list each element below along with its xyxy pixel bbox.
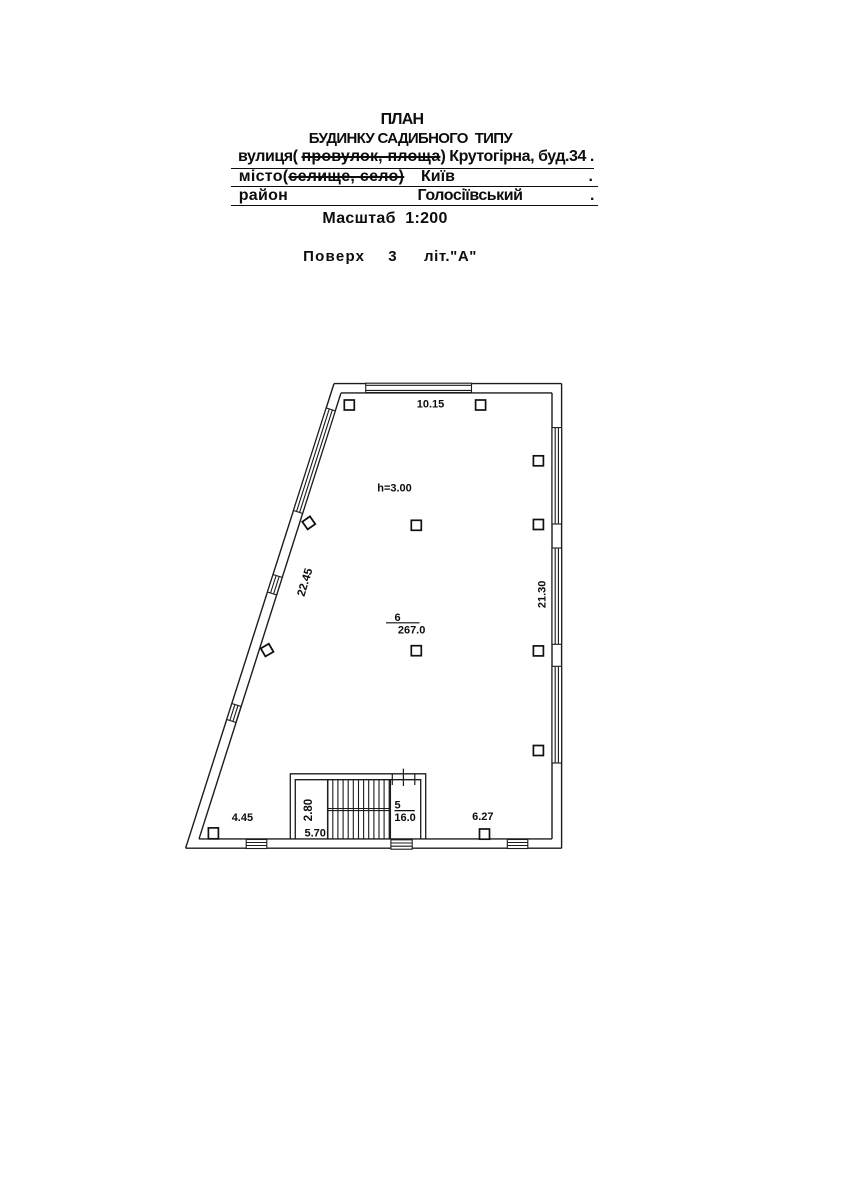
svg-text:16.0: 16.0: [394, 812, 415, 824]
svg-text:4.45: 4.45: [232, 812, 253, 824]
svg-text:267.0: 267.0: [398, 625, 426, 637]
svg-text:5.70: 5.70: [304, 828, 325, 840]
svg-text:5: 5: [395, 800, 401, 812]
svg-text:h=3.00: h=3.00: [377, 483, 412, 495]
svg-text:22.45: 22.45: [296, 566, 316, 598]
svg-text:6.27: 6.27: [472, 811, 493, 823]
svg-text:21.30: 21.30: [536, 581, 548, 609]
svg-text:2.80: 2.80: [303, 799, 315, 821]
svg-text:10.15: 10.15: [417, 399, 445, 411]
